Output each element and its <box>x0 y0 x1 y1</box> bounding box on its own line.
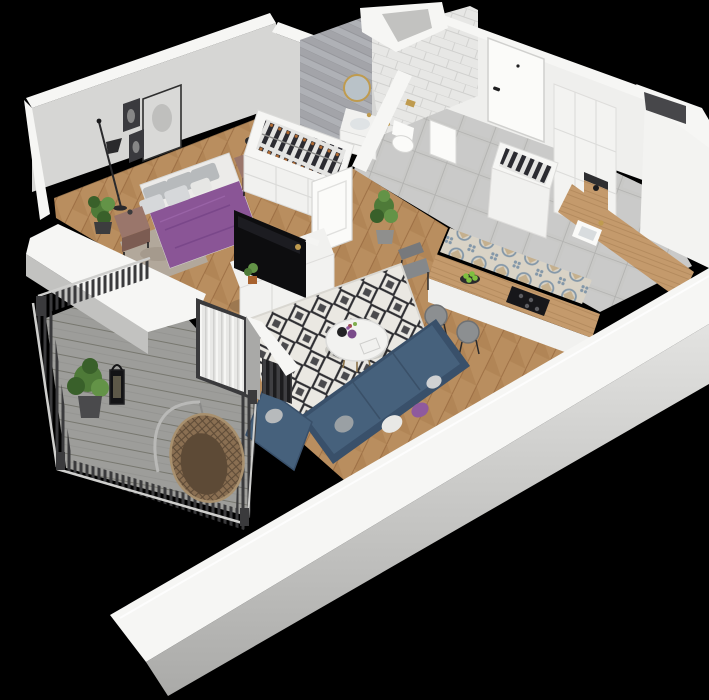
candle <box>295 244 301 250</box>
kitchen-plant-pot <box>376 230 394 244</box>
floor-lantern <box>110 365 124 404</box>
balcony-plant-pot <box>78 396 102 418</box>
coffee-table-top <box>326 319 388 361</box>
wall-art-large-sketch <box>152 104 172 132</box>
kettle <box>593 185 599 191</box>
door-peephole <box>516 64 519 67</box>
plant-pot <box>94 222 112 234</box>
vanity-faucet <box>367 113 371 117</box>
purple-vase <box>348 330 357 339</box>
nightstand-decor <box>127 209 132 214</box>
apartment-3d-view <box>0 0 709 700</box>
vanity-basin <box>350 118 370 130</box>
kitchen-faucet <box>598 220 603 225</box>
floorplan-render <box>0 0 709 700</box>
black-bowl <box>337 327 347 337</box>
